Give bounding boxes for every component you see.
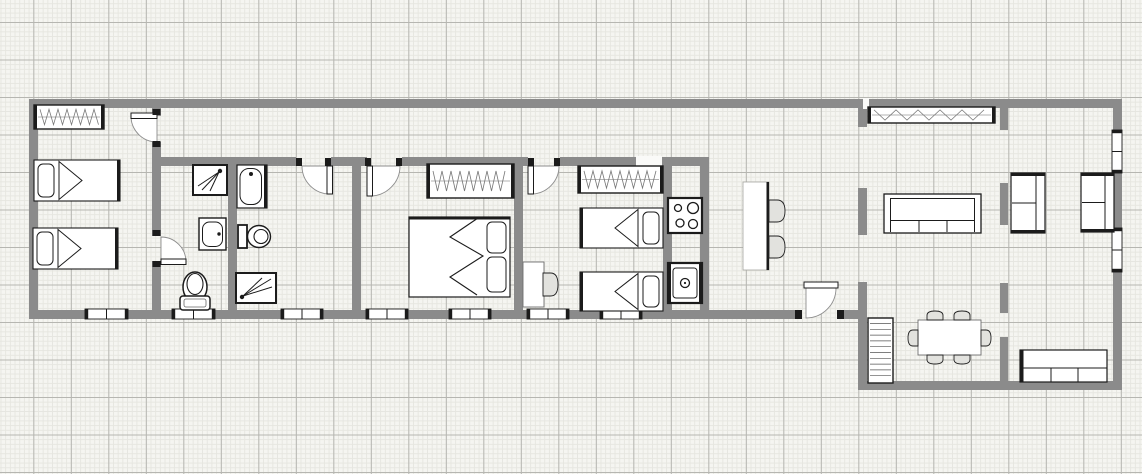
door-jamb [153,230,161,236]
window-cap [488,309,491,319]
wardrobe[interactable] [427,164,514,198]
wall-segment [560,157,636,166]
door-jamb [365,158,371,166]
wardrobe-cap [427,164,430,198]
door-jamb [153,109,161,115]
single-bed[interactable] [33,228,118,269]
double-bed[interactable] [409,217,510,297]
window-cap [449,309,452,319]
wardrobe-cap [578,166,581,193]
bathroom-door[interactable] [296,158,333,194]
pillow [643,276,659,307]
window-cap [366,309,369,319]
loveseat[interactable] [1081,173,1114,232]
faucet [249,172,253,176]
ensuite-door[interactable] [153,230,187,267]
window[interactable] [527,309,569,319]
headwall-edge [409,217,510,220]
door-leaf [367,166,373,196]
door-jamb [837,310,844,319]
single-bed[interactable] [580,208,663,248]
desk[interactable] [523,262,544,307]
bedroom3-door[interactable] [528,158,560,194]
toilet-bowl [248,226,271,248]
wall-segment [152,142,161,236]
wall-segment [858,188,867,235]
chair-seat [954,355,970,364]
door-jamb [325,158,331,166]
chair-seat [769,200,785,222]
counter-cap [699,263,702,303]
bedroom1-door[interactable] [131,109,161,147]
door-jamb [795,310,802,319]
chair-seat [908,330,918,346]
chair[interactable] [543,273,558,296]
door-jamb [528,158,534,166]
wall-segment [29,99,38,318]
floorplan-viewport [0,0,1142,474]
bookshelf[interactable] [868,318,893,383]
door-swing-arc [370,166,400,196]
dining-table-top [918,320,981,355]
wall-segment [858,282,867,390]
armrest [1011,230,1045,233]
chair[interactable] [769,200,785,222]
counter-top [743,182,769,270]
loveseat[interactable] [1011,173,1045,233]
door-jamb [153,141,161,147]
pillow [487,222,506,253]
footboard [117,160,120,201]
wardrobe-cap [868,107,871,123]
window-cap [212,309,215,319]
wardrobe[interactable] [868,107,995,123]
bathtub[interactable] [237,165,267,208]
floor-plan [0,0,1142,474]
pillow [487,257,506,292]
door-leaf [528,166,534,194]
footboard [580,208,583,248]
window[interactable] [366,309,408,319]
footboard [115,228,118,269]
shower[interactable] [236,273,276,303]
chair[interactable] [981,330,991,346]
pillow [37,232,53,265]
dining-table[interactable] [918,320,981,355]
wardrobe[interactable] [34,105,104,129]
drain-dot [684,282,686,284]
wardrobe-cap [101,105,104,129]
chair-seat [927,311,943,320]
wall-segment [1000,183,1008,225]
chair-seat [981,330,991,346]
bedroom2-door[interactable] [365,158,402,196]
pillow [643,212,659,244]
window-cap [125,309,128,319]
door-swing-arc [161,237,186,262]
window[interactable] [1112,228,1122,272]
wardrobe-cap [660,166,663,193]
door-jamb [396,158,402,166]
wall-segment [1000,337,1008,382]
wall-segment [29,99,863,108]
rear-entry-door[interactable] [795,282,844,319]
bar-counter[interactable] [743,182,769,270]
wardrobe-cap [511,164,514,198]
door-leaf [161,259,186,265]
window[interactable] [281,309,323,319]
door-jamb [296,158,302,166]
wall-segment [662,157,709,166]
window-cap [1112,130,1122,133]
sideboard[interactable] [1020,350,1107,382]
wardrobe-cap [992,107,995,123]
armrest [1081,229,1114,232]
desk-top [523,262,544,307]
stove[interactable] [668,198,702,233]
wardrobe-cap [34,105,37,129]
toilet-tank [180,296,210,310]
armrest [1011,173,1045,176]
window-cap [405,309,408,319]
wardrobe[interactable] [578,166,663,193]
wall-segment [152,261,161,318]
chair-seat [769,236,785,258]
door-jamb [153,261,161,267]
wall-segment [1000,283,1008,313]
shower[interactable] [193,165,227,195]
toilet-front[interactable] [180,272,210,310]
sofa-frame [884,194,981,233]
door-leaf [327,166,333,194]
window-cap [320,309,323,319]
counter-cap [668,263,671,303]
chair[interactable] [927,311,943,320]
bookshelf-frame [868,318,893,383]
chair[interactable] [954,355,970,364]
pillow [38,164,54,197]
wall-segment [331,157,367,166]
window[interactable] [85,309,128,319]
window-cap [281,309,284,319]
single-bed[interactable] [34,160,120,201]
window-cap [1112,269,1122,272]
kitchen-sink[interactable] [668,263,702,303]
single-bed[interactable] [580,272,663,311]
sideboard-frame [1020,350,1107,382]
window[interactable] [449,309,491,319]
door-jamb [554,158,560,166]
chair[interactable] [908,330,918,346]
bathroom-sink[interactable] [199,218,226,250]
chair[interactable] [769,236,785,258]
window-cap [172,309,175,319]
window-cap [85,309,88,319]
toilet-side[interactable] [238,225,271,248]
chair[interactable] [927,355,943,364]
chair-seat [543,273,558,296]
footboard [580,272,583,311]
chair-seat [927,355,943,364]
door-leaf [804,282,838,288]
window-cap [527,309,530,319]
wall-segment [514,157,523,318]
door-swing-arc [806,288,836,318]
window-cap [566,309,569,319]
chair[interactable] [954,311,970,320]
toilet-tank [238,225,247,248]
sideboard-edge [1020,350,1024,382]
wall-segment [1000,99,1008,130]
wall-segment [29,310,801,319]
chair-seat [954,311,970,320]
wall-segment [352,157,361,318]
door-swing-arc [302,166,330,194]
door-swing-arc [131,116,157,142]
tub-edge [264,165,267,208]
door-swing-arc [531,166,559,194]
armrest [1081,173,1114,176]
faucet [217,232,220,235]
sofa[interactable] [884,194,981,233]
window[interactable] [1112,130,1122,173]
